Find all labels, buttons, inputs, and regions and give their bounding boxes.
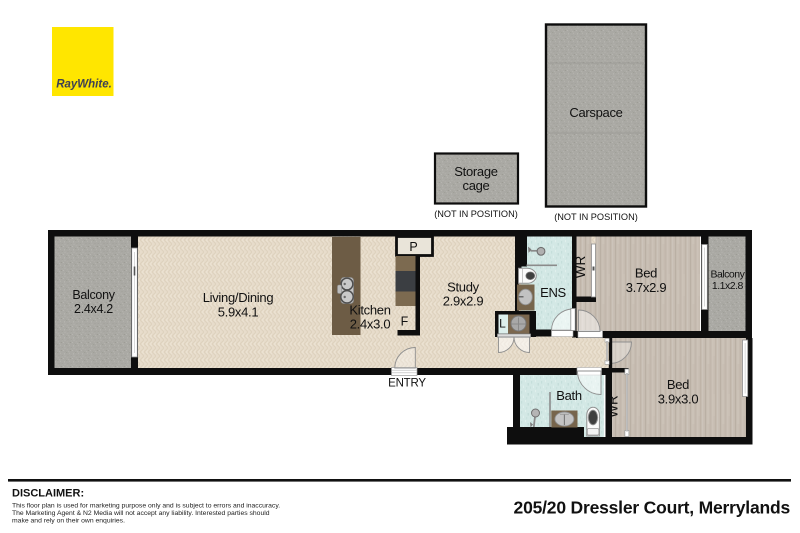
- svg-text:P: P: [409, 240, 417, 254]
- svg-text:Living/Dining: Living/Dining: [203, 290, 274, 305]
- svg-text:Kitchen: Kitchen: [349, 303, 390, 318]
- svg-text:Balcony: Balcony: [72, 288, 115, 302]
- svg-text:2.9x2.9: 2.9x2.9: [443, 294, 484, 309]
- svg-text:This floor plan is used for ma: This floor plan is used for marketing pu…: [12, 503, 280, 510]
- svg-text:2.4x3.0: 2.4x3.0: [350, 317, 391, 332]
- svg-text:5.9x4.1: 5.9x4.1: [218, 305, 259, 320]
- svg-text:205/20 Dressler Court, Merryla: 205/20 Dressler Court, Merrylands: [514, 498, 791, 518]
- svg-text:WR: WR: [573, 256, 588, 279]
- svg-text:(NOT IN POSITION): (NOT IN POSITION): [554, 212, 638, 222]
- svg-text:Balcony: Balcony: [710, 269, 745, 281]
- svg-text:1.1x2.8: 1.1x2.8: [712, 280, 744, 292]
- svg-text:ENS: ENS: [540, 285, 566, 300]
- svg-text:F: F: [401, 315, 409, 329]
- svg-text:Bed: Bed: [667, 377, 689, 392]
- svg-text:Carspace: Carspace: [569, 105, 622, 120]
- svg-text:2.4x4.2: 2.4x4.2: [74, 302, 113, 316]
- svg-text:The Marketing Agent & N2 Media: The Marketing Agent & N2 Media will not …: [12, 510, 270, 517]
- svg-text:Bed: Bed: [635, 266, 657, 281]
- svg-text:(NOT IN POSITION): (NOT IN POSITION): [434, 209, 518, 219]
- svg-text:DISCLAIMER:: DISCLAIMER:: [12, 488, 84, 500]
- svg-text:3.7x2.9: 3.7x2.9: [626, 280, 667, 295]
- svg-text:L: L: [499, 317, 506, 331]
- svg-text:Study: Study: [447, 280, 480, 295]
- svg-text:RayWhite.: RayWhite.: [56, 79, 112, 91]
- svg-text:ENTRY: ENTRY: [388, 378, 426, 390]
- svg-text:Bath: Bath: [556, 388, 582, 403]
- svg-text:3.9x3.0: 3.9x3.0: [658, 392, 699, 407]
- svg-text:make and rely on their own enq: make and rely on their own enquiries.: [12, 518, 125, 525]
- svg-text:Storage: Storage: [454, 164, 498, 179]
- svg-text:cage: cage: [463, 178, 490, 193]
